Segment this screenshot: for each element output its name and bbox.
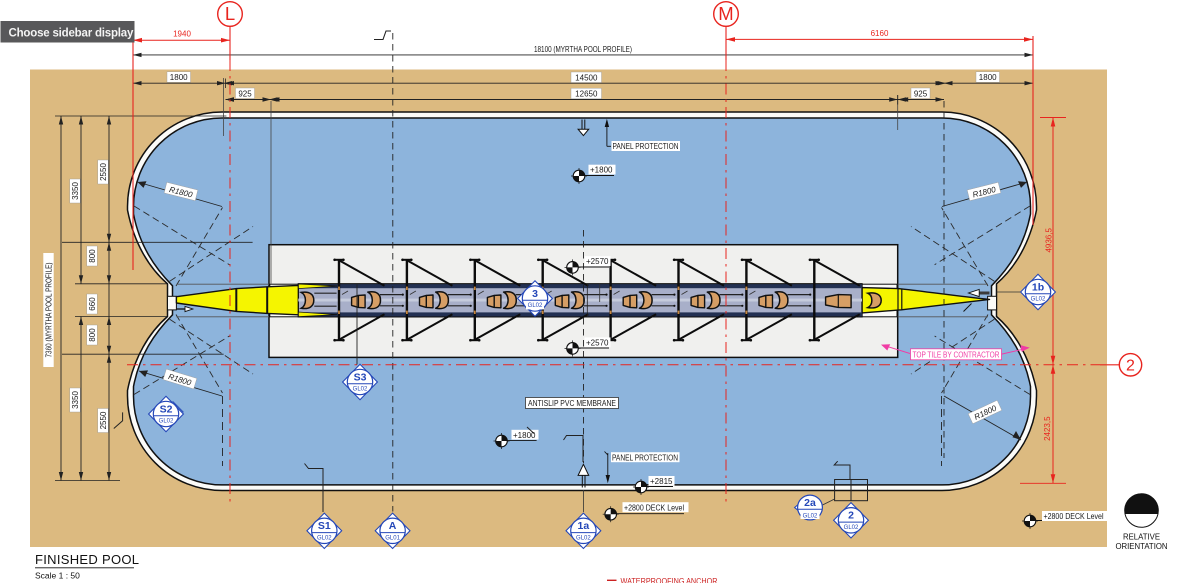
svg-text:ANTISLIP PVC MEMBRANE: ANTISLIP PVC MEMBRANE xyxy=(528,399,616,408)
svg-text:S1: S1 xyxy=(318,520,331,532)
svg-text:GL02: GL02 xyxy=(317,536,332,542)
svg-text:660: 660 xyxy=(88,297,97,311)
svg-text:1940: 1940 xyxy=(173,30,191,39)
svg-text:WATERPROOFING ANCHOR: WATERPROOFING ANCHOR xyxy=(621,577,718,583)
svg-text:3350: 3350 xyxy=(71,182,80,200)
svg-text:14500: 14500 xyxy=(575,73,598,82)
svg-text:4936,5: 4936,5 xyxy=(1045,228,1054,253)
svg-text:FINISHED POOL: FINISHED POOL xyxy=(35,552,139,567)
svg-text:GL02: GL02 xyxy=(844,525,859,531)
svg-text:M: M xyxy=(718,3,733,24)
svg-text:L: L xyxy=(225,3,235,24)
svg-text:S2: S2 xyxy=(160,403,173,415)
svg-text:RELATIVE: RELATIVE xyxy=(1123,533,1160,542)
svg-text:2423,5: 2423,5 xyxy=(1043,416,1052,441)
svg-text:PANEL PROTECTION: PANEL PROTECTION xyxy=(612,453,678,462)
svg-text:12650: 12650 xyxy=(575,90,598,99)
svg-text:S3: S3 xyxy=(354,371,367,383)
svg-text:1a: 1a xyxy=(578,520,590,532)
svg-text:+1800: +1800 xyxy=(590,166,613,175)
svg-text:2550: 2550 xyxy=(99,163,108,181)
svg-text:3350: 3350 xyxy=(71,391,80,409)
svg-text:800: 800 xyxy=(88,249,97,263)
svg-text:ORIENTATION: ORIENTATION xyxy=(1115,542,1167,551)
svg-text:+2570: +2570 xyxy=(586,338,609,347)
svg-text:GL02: GL02 xyxy=(353,387,368,393)
svg-text:1800: 1800 xyxy=(170,73,188,82)
svg-text:GL02: GL02 xyxy=(576,536,591,542)
svg-text:925: 925 xyxy=(238,89,252,98)
svg-text:TOP TILE BY CONTRACTOR: TOP TILE BY CONTRACTOR xyxy=(913,350,1000,359)
svg-text:A: A xyxy=(389,520,397,532)
svg-text:GL02: GL02 xyxy=(803,514,818,520)
svg-text:2: 2 xyxy=(1126,357,1135,374)
svg-text:GL02: GL02 xyxy=(528,303,543,309)
svg-text:800: 800 xyxy=(88,328,97,342)
svg-text:2a: 2a xyxy=(804,497,816,509)
svg-text:+2800 DECK Level: +2800 DECK Level xyxy=(624,503,684,512)
svg-text:6160: 6160 xyxy=(871,29,889,38)
svg-text:+2815: +2815 xyxy=(650,477,673,486)
svg-text:3: 3 xyxy=(532,288,538,300)
svg-text:1800: 1800 xyxy=(979,73,997,82)
svg-text:18100 (MYRTHA POOL PROFILE): 18100 (MYRTHA POOL PROFILE) xyxy=(534,45,632,54)
svg-text:925: 925 xyxy=(914,89,928,98)
svg-text:1b: 1b xyxy=(1032,281,1044,293)
svg-text:7360 (MYRTHA POOL PROFILE): 7360 (MYRTHA POOL PROFILE) xyxy=(45,262,54,357)
svg-text:GL01: GL01 xyxy=(385,536,400,542)
svg-text:2: 2 xyxy=(848,510,854,522)
svg-text:PANEL PROTECTION: PANEL PROTECTION xyxy=(613,142,679,151)
svg-text:GL02: GL02 xyxy=(1031,297,1046,303)
svg-text:Scale 1 : 50: Scale 1 : 50 xyxy=(35,570,80,580)
svg-text:Choose sidebar display: Choose sidebar display xyxy=(9,27,134,39)
svg-text:GL02: GL02 xyxy=(159,419,174,425)
svg-text:+2800 DECK Level: +2800 DECK Level xyxy=(1044,512,1104,521)
svg-text:2550: 2550 xyxy=(99,411,108,429)
svg-text:+2570: +2570 xyxy=(586,257,609,266)
